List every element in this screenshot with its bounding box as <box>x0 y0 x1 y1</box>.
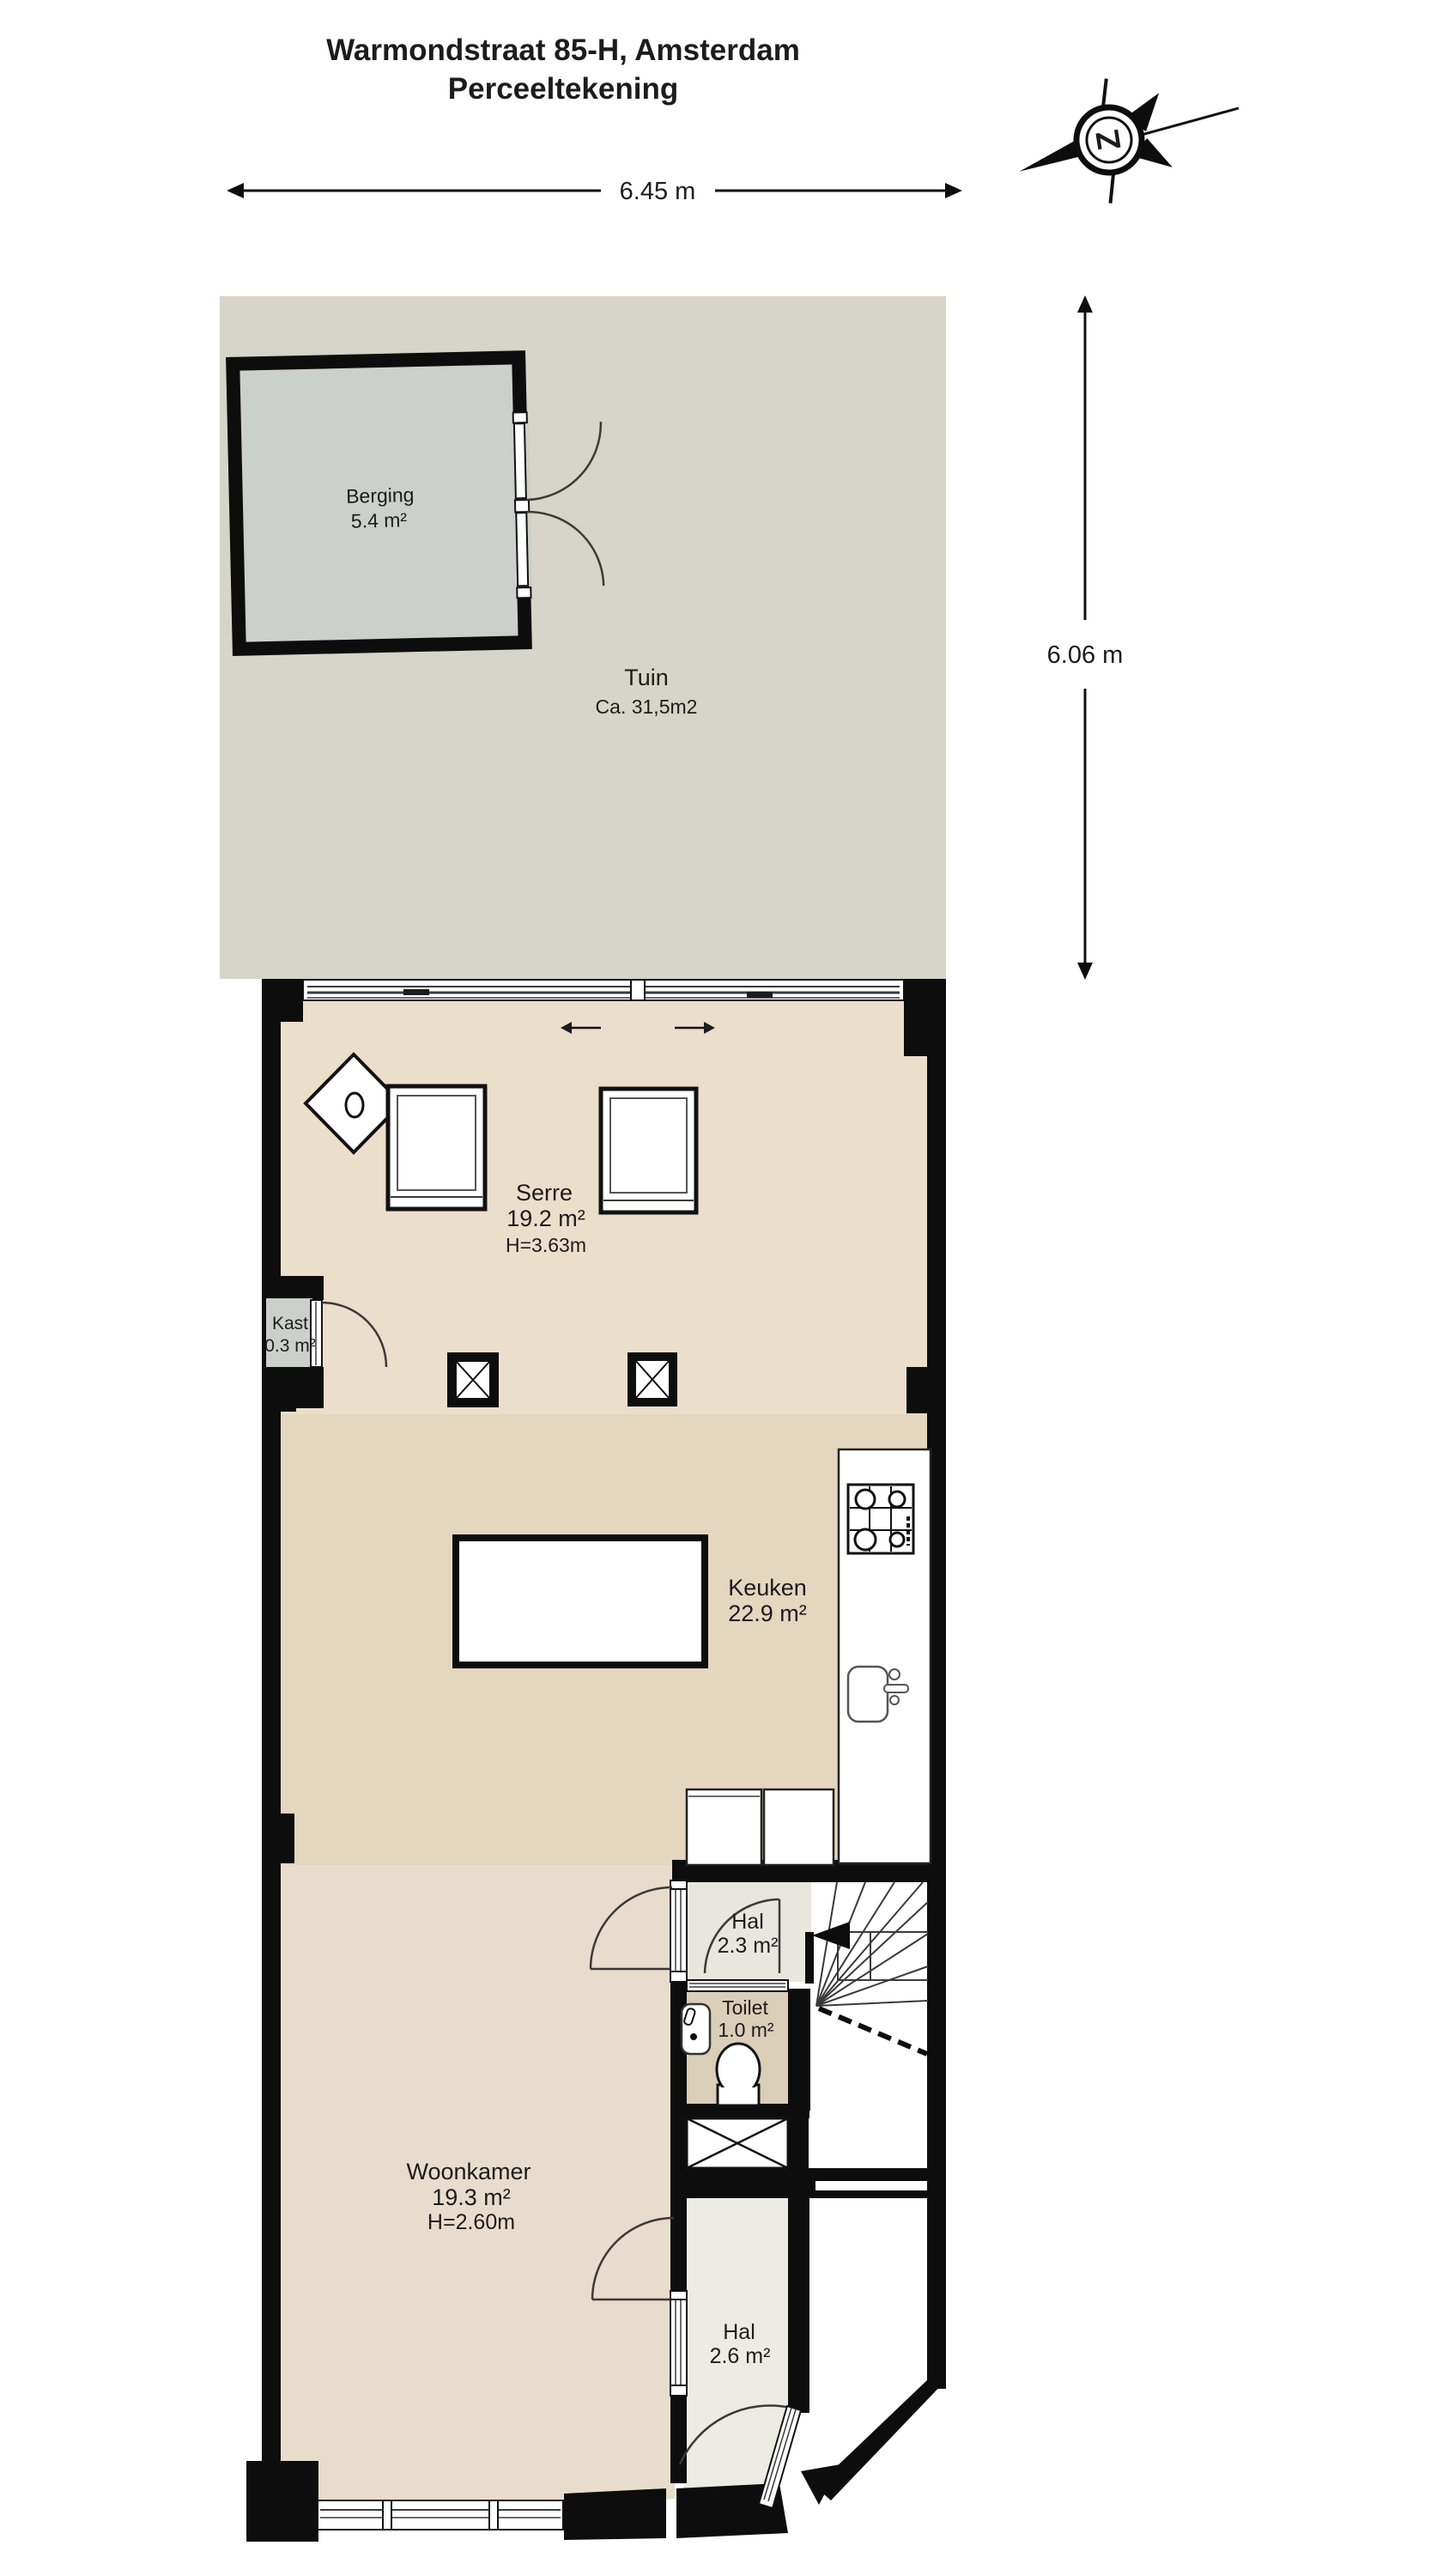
woonkamer-height: H=2.60m <box>427 2210 515 2234</box>
front-window <box>318 2500 563 2530</box>
serre-height: H=3.63m <box>506 1234 586 1256</box>
page-title: Warmondstraat 85-H, Amsterdam Perceeltek… <box>326 33 800 106</box>
woonkamer-area: 19.3 m² <box>432 2184 511 2210</box>
serre-area: 19.2 m² <box>506 1206 585 1231</box>
floorplan-page: Warmondstraat 85-H, Amsterdam Perceeltek… <box>0 0 1449 2576</box>
kitchen-island <box>456 1538 705 1665</box>
floorplan-canvas: Warmondstraat 85-H, Amsterdam Perceeltek… <box>0 0 1449 2576</box>
serre-skylight-left <box>388 1086 485 1209</box>
title-line2: Perceeltekening <box>448 72 678 106</box>
kast-label: Kast <box>272 1314 308 1334</box>
hal-boven-area: 2.3 m² <box>718 1934 779 1958</box>
shaft <box>687 2118 788 2168</box>
toilet-label: Toilet <box>722 1996 768 2019</box>
column-left <box>447 1352 499 1407</box>
hal-entree-label: Hal <box>723 2320 755 2344</box>
dimension-width: 6.45 m <box>227 178 962 205</box>
stove-icon <box>848 1485 913 1553</box>
toilet-bowl-icon <box>717 2044 760 2105</box>
title-line1: Warmondstraat 85-H, Amsterdam <box>326 33 800 67</box>
hal-boven-label: Hal <box>731 1910 764 1934</box>
keuken-area: 22.9 m² <box>728 1601 807 1626</box>
toilet-area: 1.0 m² <box>718 2019 774 2041</box>
serre-skylight-right <box>601 1089 696 1212</box>
serre-label: Serre <box>516 1180 573 1206</box>
tuin-area: Ca. 31,5m2 <box>596 696 698 718</box>
kitchen-cabinets <box>687 1789 834 1865</box>
woonkamer-label: Woonkamer <box>406 2159 530 2184</box>
berging-area: 5.4 m² <box>351 508 408 532</box>
dimension-depth-label: 6.06 m <box>1047 641 1124 669</box>
column-right <box>627 1352 677 1406</box>
keuken-label: Keuken <box>728 1575 807 1601</box>
toilet-sink-icon <box>682 2004 710 2054</box>
compass-icon: Z <box>1007 59 1250 217</box>
tuin-label: Tuin <box>624 665 669 690</box>
dimension-width-label: 6.45 m <box>620 178 696 205</box>
hal-entree-area: 2.6 m² <box>710 2344 771 2368</box>
dimension-depth: 6.06 m <box>1047 295 1124 980</box>
berging-label: Berging <box>346 483 415 507</box>
kast-area: 0.3 m² <box>264 1336 316 1356</box>
